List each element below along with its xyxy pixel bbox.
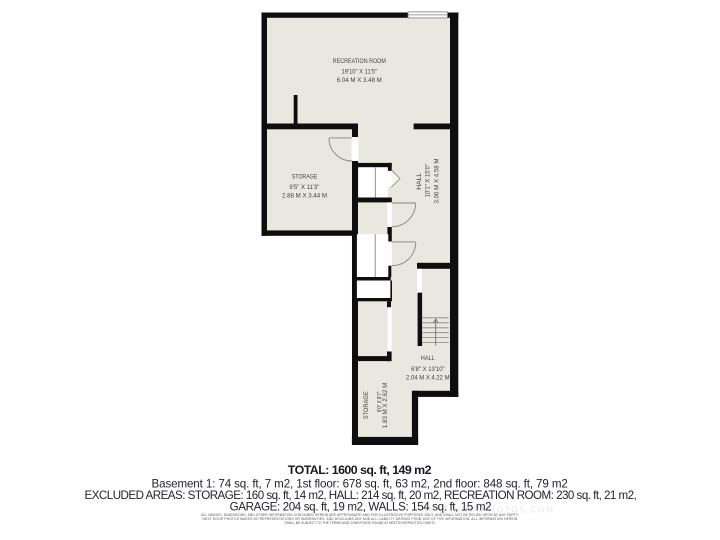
svg-text:STORAGE: STORAGE <box>292 173 318 180</box>
svg-text:HALL: HALL <box>416 172 423 189</box>
svg-text:6'8" X 13'10": 6'8" X 13'10" <box>411 366 445 373</box>
svg-text:TOTAL: 1600 sq. ft, 149 m2: TOTAL: 1600 sq. ft, 149 m2 <box>288 463 432 477</box>
svg-text:HALL: HALL <box>421 355 435 362</box>
svg-text:1.83 M X 2.62 M: 1.83 M X 2.62 M <box>382 383 389 429</box>
svg-text:2.88 M X 3.44 M: 2.88 M X 3.44 M <box>282 193 327 200</box>
svg-text:RECREATION ROOM: RECREATION ROOM <box>333 58 386 65</box>
svg-text:GARAGE: 204 sq. ft, 19 m2, WAL: GARAGE: 204 sq. ft, 19 m2, WALLS: 154 sq… <box>230 501 492 514</box>
svg-text:STORAGE: STORAGE <box>363 391 370 420</box>
svg-text:SHALL BE SUBJECT TO THE TERMS: SHALL BE SUBJECT TO THE TERMS AND CONDIT… <box>285 521 437 525</box>
svg-text:9'5" X 11'3": 9'5" X 11'3" <box>289 184 320 191</box>
svg-text:2.04 M X 4.22 M: 2.04 M X 4.22 M <box>406 375 450 382</box>
svg-text:3.06 M X 4.58 M: 3.06 M X 4.58 M <box>433 159 440 204</box>
svg-text:6.04 M X 3.48 M: 6.04 M X 3.48 M <box>337 77 382 84</box>
svg-text:19'10" X 11'5": 19'10" X 11'5" <box>342 69 378 76</box>
svg-text:10'1" X 15'0": 10'1" X 15'0" <box>425 164 432 198</box>
